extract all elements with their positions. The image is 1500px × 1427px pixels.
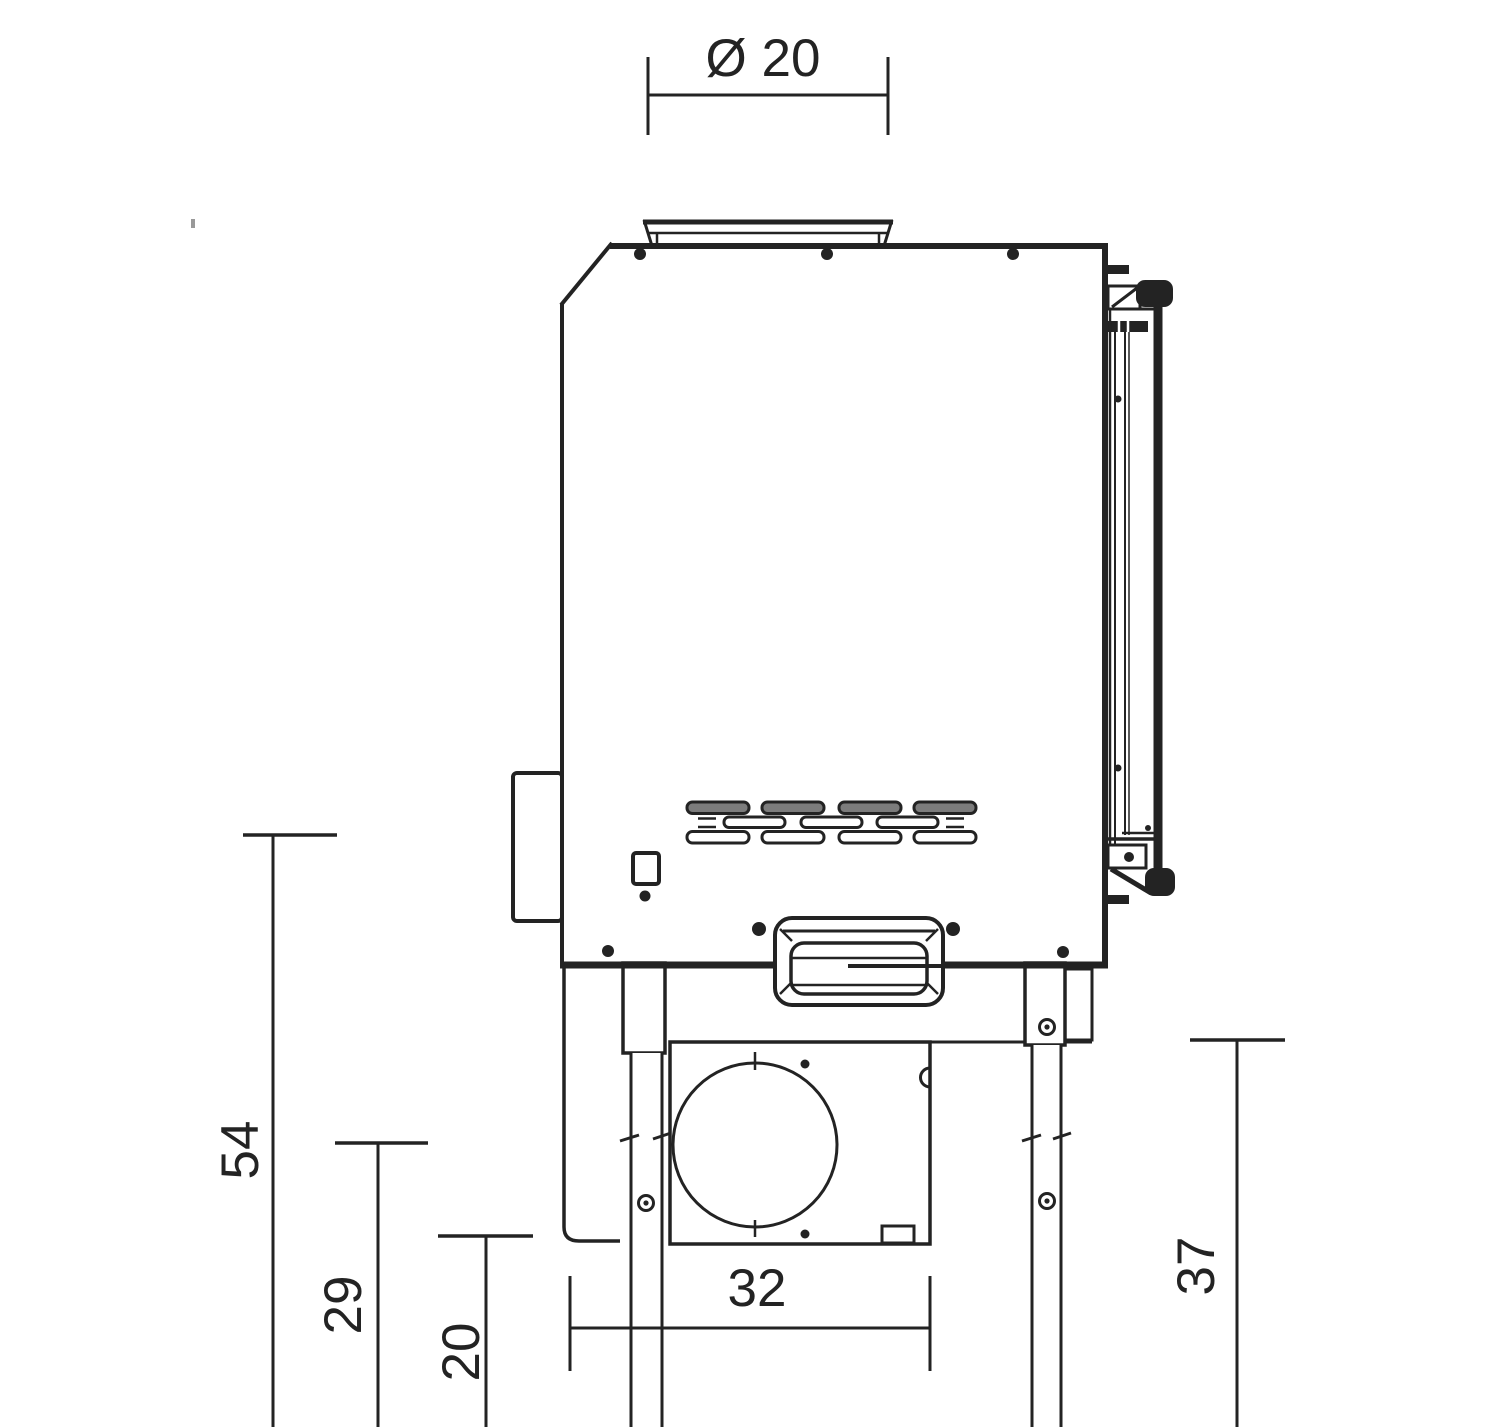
stove-side-view-drawing: Ø 20 54 29 20 32 37 [0, 0, 1500, 1427]
dimension-20: 20 [432, 1236, 533, 1427]
air-intake-box [513, 773, 562, 921]
screw-dot [602, 945, 614, 957]
dimension-37: 37 [1167, 1040, 1285, 1427]
front-leg [620, 1053, 671, 1427]
door-hinge-bottom [1145, 868, 1175, 896]
handle [752, 918, 960, 1005]
screw-dot [1057, 946, 1069, 958]
convection-vents [687, 802, 976, 843]
switch-plate [633, 853, 659, 902]
rear-side-plate [1065, 969, 1092, 1040]
screw-dot [946, 922, 960, 936]
body-chamfer [561, 243, 612, 305]
screw-dot [634, 248, 646, 260]
dimension-32: 32 [570, 1259, 930, 1371]
base-assembly [564, 963, 1092, 1427]
junction-box [882, 1226, 914, 1243]
front-leg-bracket [623, 963, 665, 1053]
dim-label-32: 32 [728, 1259, 787, 1318]
rear-leg [1022, 1020, 1071, 1427]
dim-label-20: 20 [432, 1323, 491, 1382]
screw-dot [752, 922, 766, 936]
dim-label-flue: Ø 20 [706, 29, 821, 88]
door-tab-bottom [1107, 895, 1129, 904]
screw-dot [1115, 765, 1122, 772]
stray-mark [191, 219, 195, 228]
screw-dot [1007, 248, 1019, 260]
dim-label-54: 54 [211, 1121, 270, 1180]
screw-dot [821, 248, 833, 260]
screw-dot [1115, 396, 1122, 403]
drawing-canvas: Ø 20 54 29 20 32 37 [0, 0, 1500, 1427]
flue-collar [634, 220, 1019, 260]
base-left-panel [564, 967, 620, 1241]
screw-dot [801, 1060, 810, 1069]
door-assembly [1107, 265, 1175, 904]
dimension-29: 29 [314, 1143, 428, 1427]
dim-label-37: 37 [1167, 1237, 1226, 1296]
dimension-flue-diameter: Ø 20 [648, 29, 888, 135]
dim-label-29: 29 [314, 1276, 373, 1335]
door-tab-top [1107, 265, 1129, 274]
dimension-54: 54 [211, 835, 337, 1427]
screw-dot [801, 1230, 810, 1239]
